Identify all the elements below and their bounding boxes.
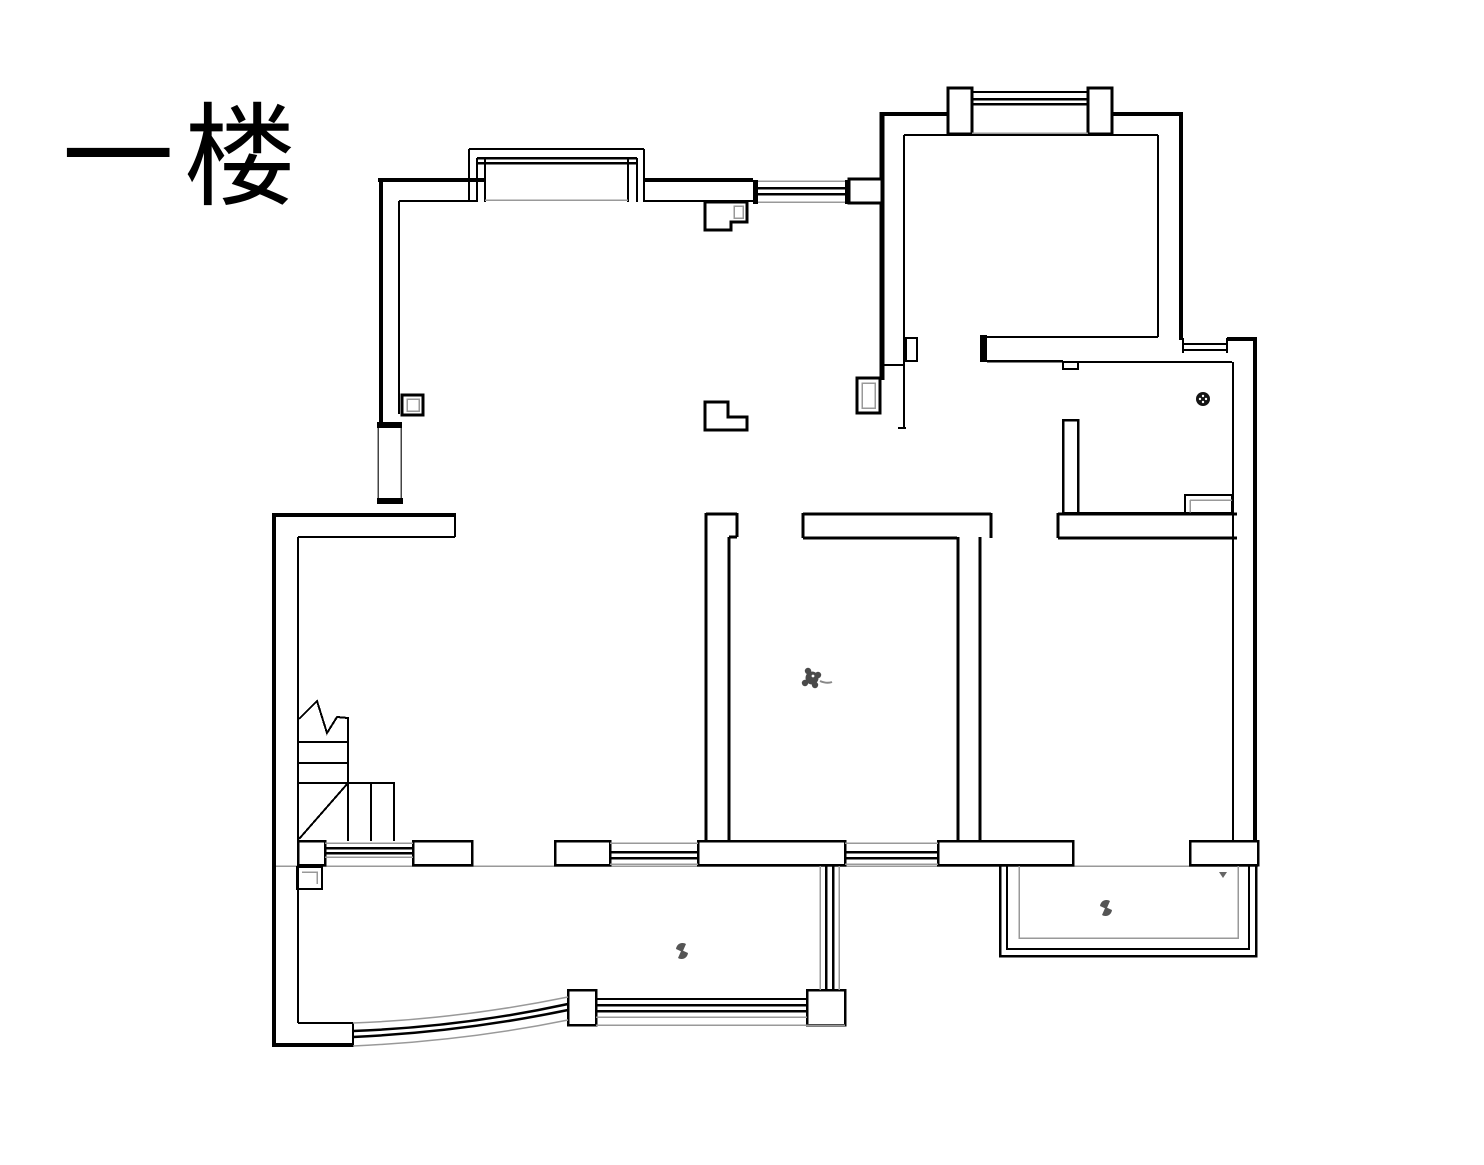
floor-title: 一楼 — [62, 93, 306, 223]
floor-title-label: 一楼 — [62, 93, 306, 223]
floor-plan-page: 一楼 — [0, 0, 1484, 1165]
floor-drain-icon — [1196, 392, 1210, 406]
floor-plan-canvas: 一楼 — [0, 0, 1484, 1165]
